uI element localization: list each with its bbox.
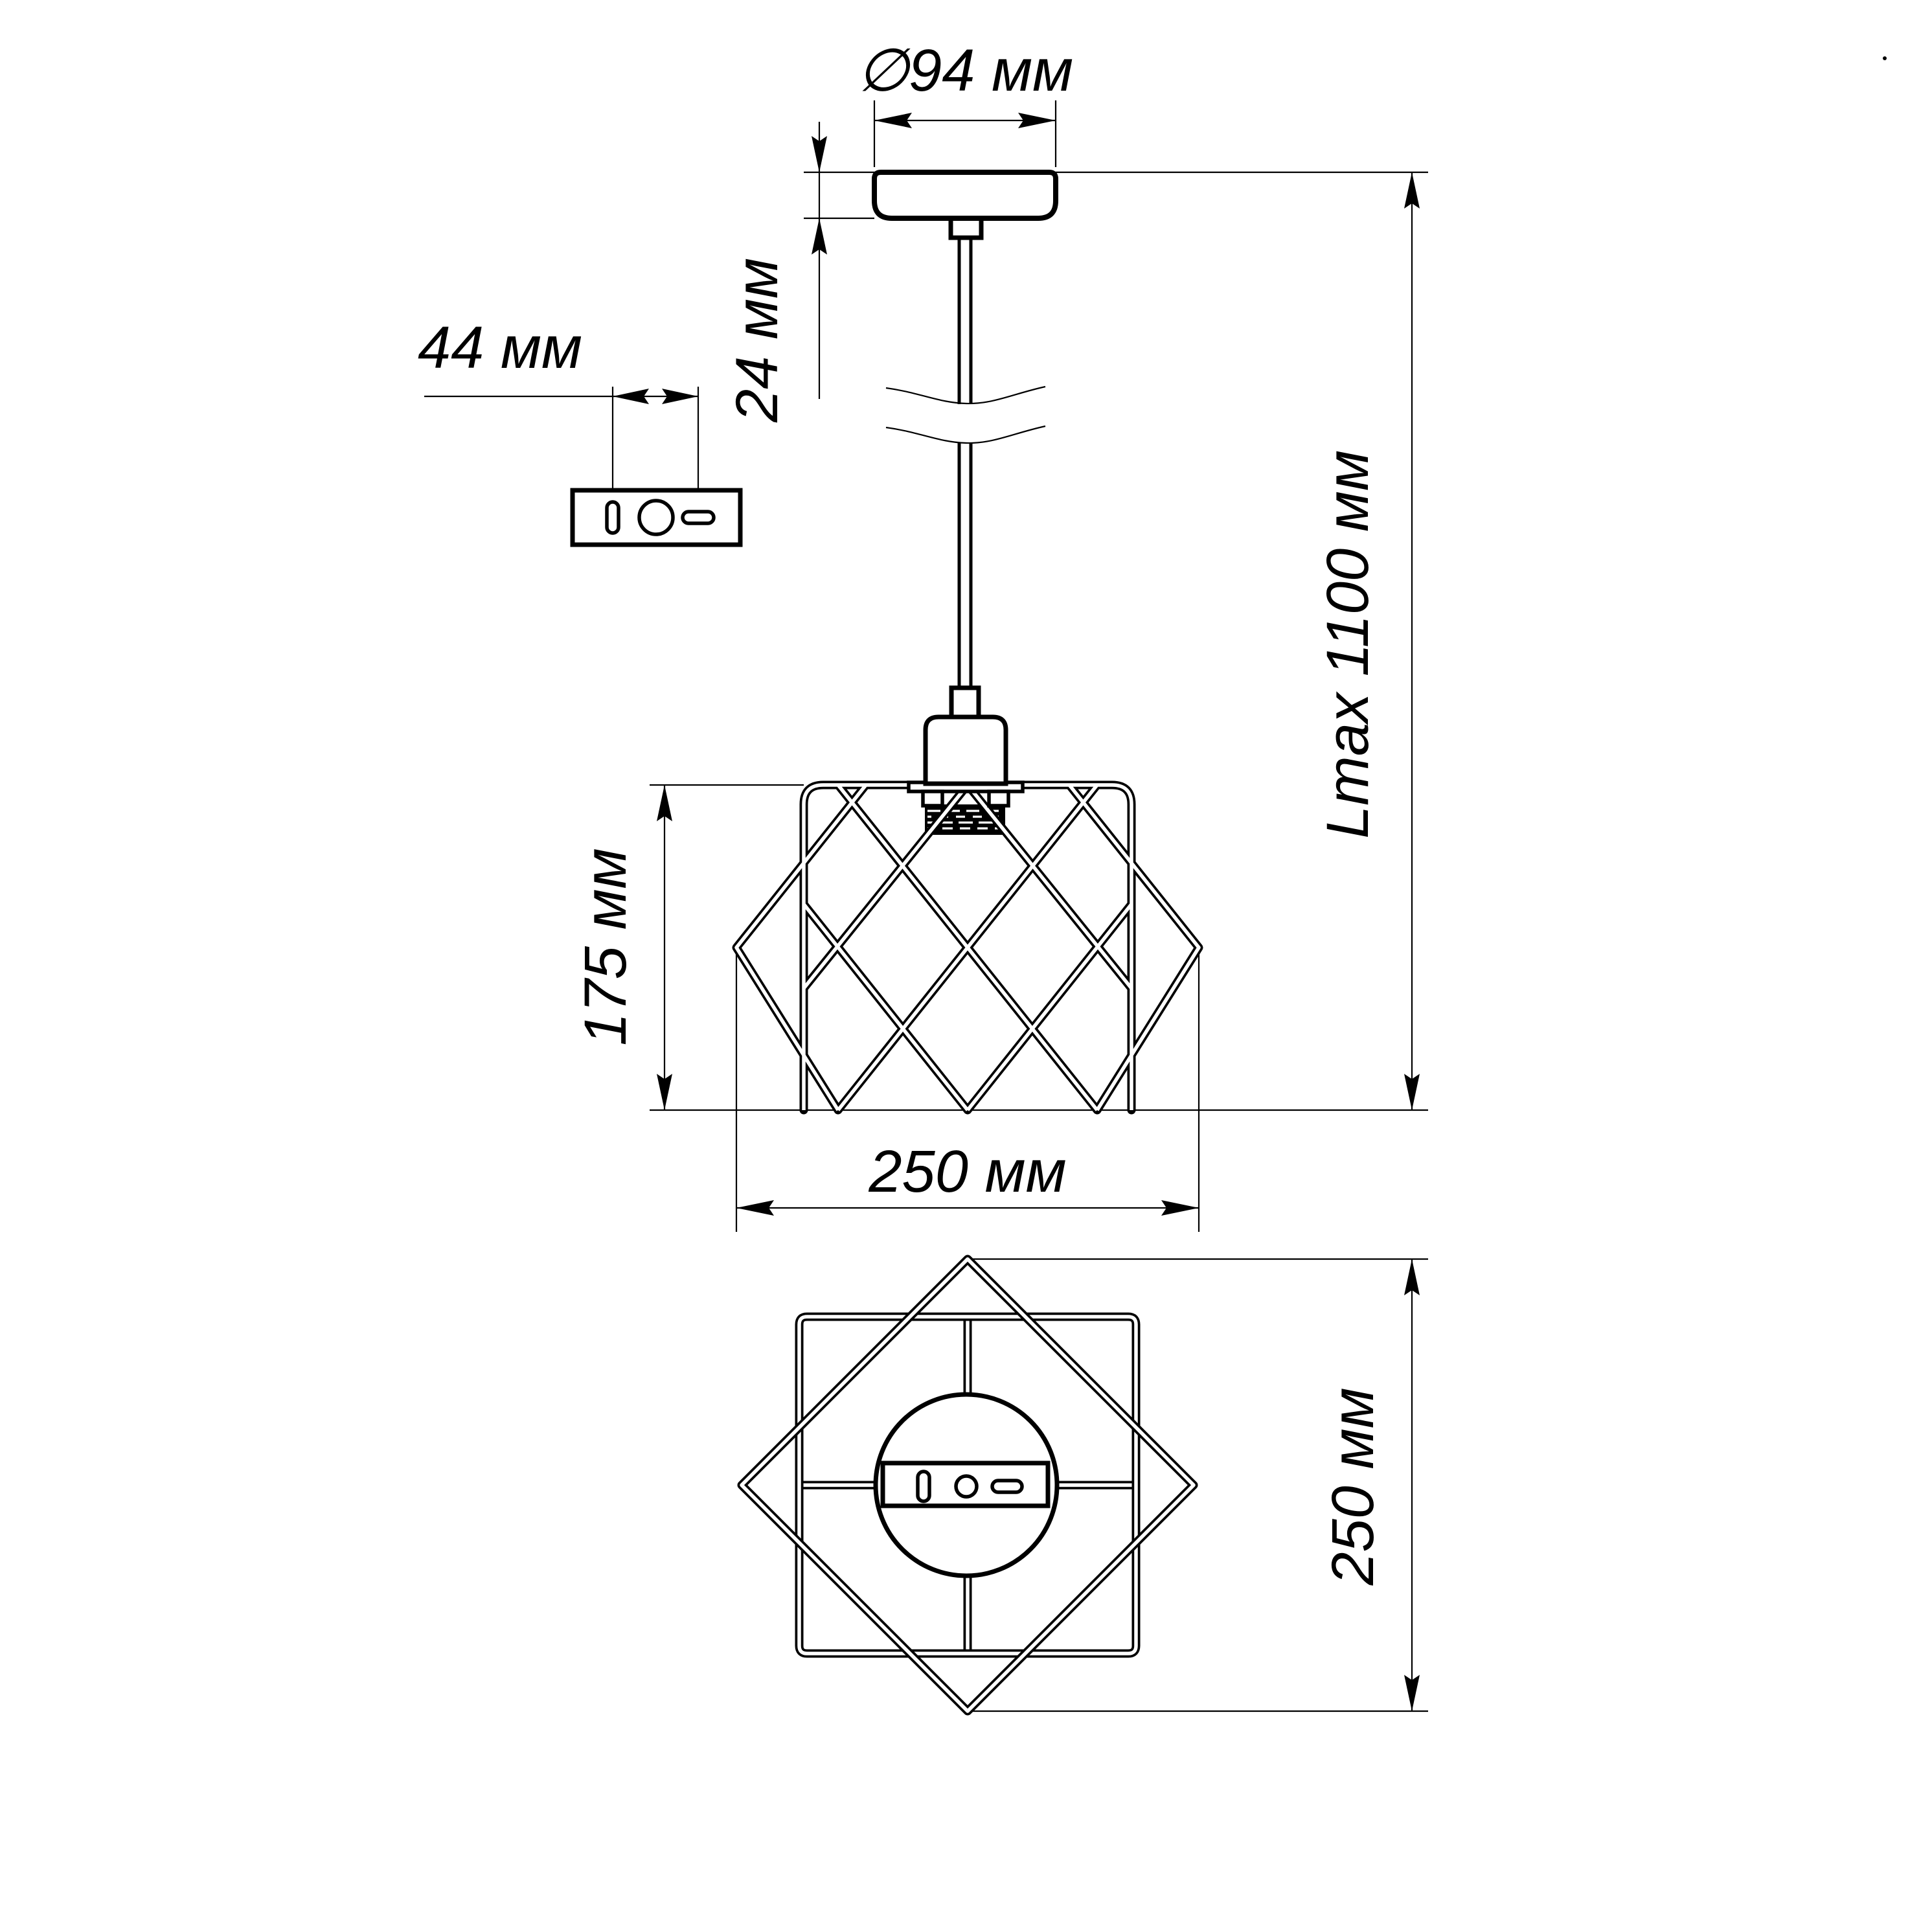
dim-label-bracket-spacing: 44 мм [418,315,582,381]
bottom-view [742,1259,1194,1711]
arrowhead [657,785,672,821]
plan-bracket-slot-horizontal [992,1481,1022,1492]
arrowhead [613,389,649,404]
arrowhead [1404,172,1420,209]
socket-nut-right [989,791,1008,806]
dimension-labels: ∅94 мм 24 мм 44 мм Lmax 1100 мм 175 мм 2… [418,38,1386,1586]
bracket-spacing-extension-lines [613,387,698,500]
arrowhead [1161,1200,1199,1216]
socket-body [926,717,1006,784]
plan-bracket-hole-center [956,1476,977,1497]
bracket-slot-vertical [607,502,619,533]
socket-stem [951,688,979,717]
dim-label-canopy-height: 24 мм [724,258,790,423]
bracket-detail-view [573,490,740,545]
canopy-body [874,172,1056,218]
lamp-socket [909,688,1023,806]
suspension-cord [886,238,1045,688]
dim-label-shade-width: 250 мм [868,1139,1066,1205]
arrowhead [662,389,698,404]
speck-artifact [1883,56,1887,60]
ceiling-canopy [874,172,1056,238]
bracket-slot-horizontal [683,512,714,523]
arrowhead [736,1200,774,1216]
dim-label-plan-size: 250 мм [1320,1387,1386,1585]
cord-upper-segment [959,238,971,404]
arrowhead [1404,1259,1420,1295]
arrowhead [1404,1675,1420,1711]
plan-bracket-slot-vertical [918,1472,929,1501]
dim-label-shade-height: 175 мм [573,848,639,1045]
drawing-page: ∅94 мм 24 мм 44 мм Lmax 1100 мм 175 мм 2… [0,0,1932,1932]
arrowhead [657,1074,672,1110]
arrowhead [1018,113,1056,128]
dim-label-canopy-diameter: ∅94 мм [857,38,1073,104]
socket-nut-left [923,791,942,806]
arrowhead [874,113,912,128]
arrowhead [812,136,827,172]
canopy-diameter-extension-lines [874,100,1056,167]
cord-break-symbol [886,387,1045,443]
canopy-stem [951,218,981,238]
arrowhead [812,218,827,255]
front-view [736,172,1199,1110]
bracket-hole-center [639,501,673,534]
technical-drawing: ∅94 мм 24 мм 44 мм Lmax 1100 мм 175 мм 2… [0,0,1932,1932]
dim-label-max-length: Lmax 1100 мм [1315,450,1381,839]
cord-lower-segment [959,442,971,688]
arrowhead [1404,1074,1420,1110]
